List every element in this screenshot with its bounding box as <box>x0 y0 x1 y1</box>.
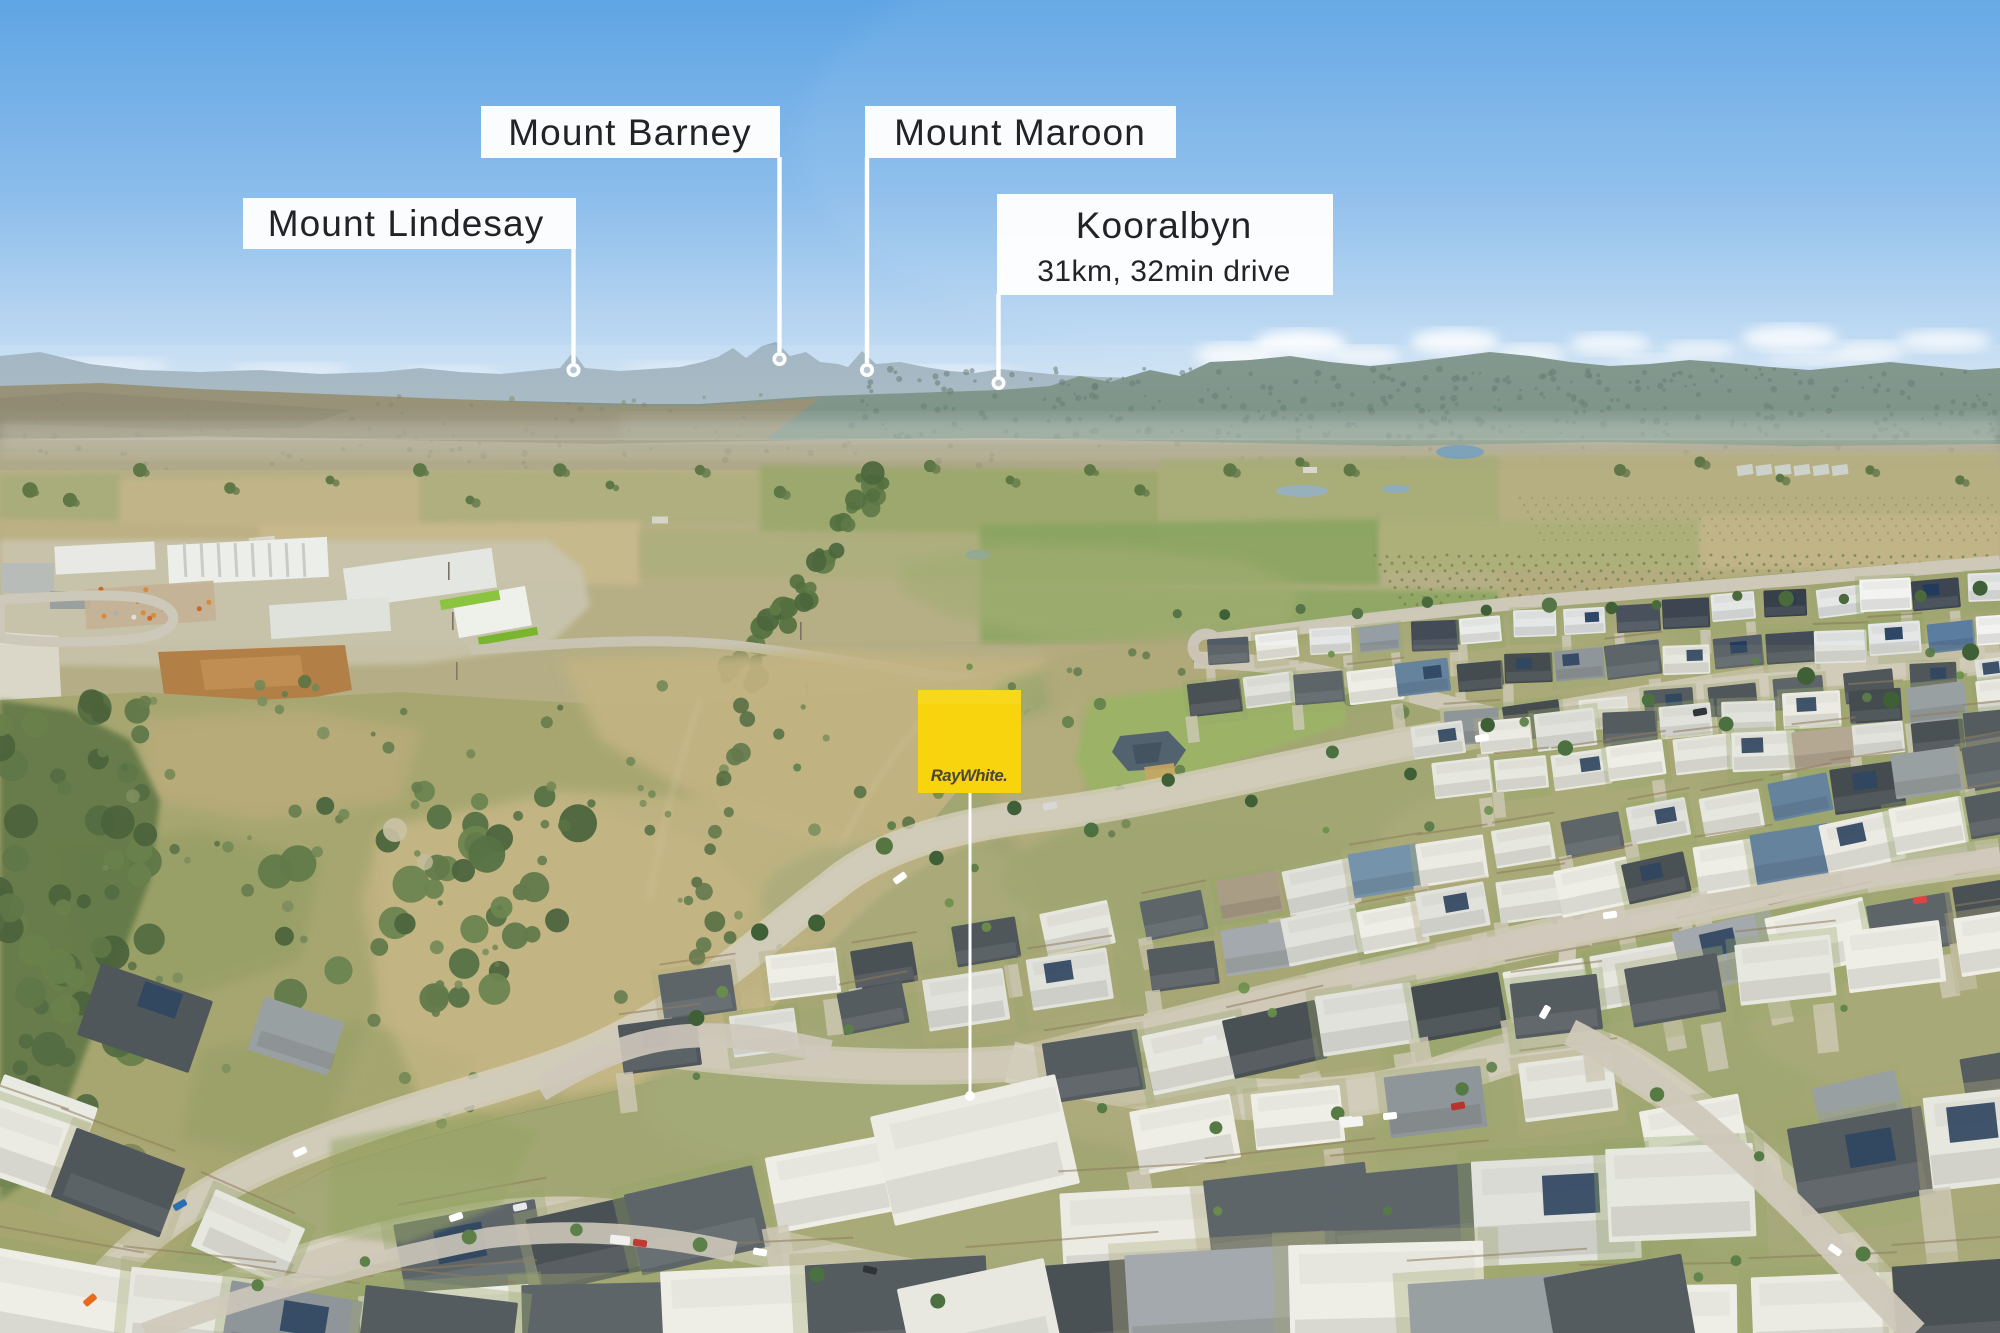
svg-text:RayWhite.: RayWhite. <box>931 766 1008 785</box>
svg-text:Mount Maroon: Mount Maroon <box>894 112 1146 153</box>
svg-text:Mount Barney: Mount Barney <box>508 112 752 153</box>
svg-text:Mount Lindesay: Mount Lindesay <box>268 203 545 244</box>
svg-text:31km, 32min drive: 31km, 32min drive <box>1037 255 1291 288</box>
svg-text:Kooralbyn: Kooralbyn <box>1076 205 1253 246</box>
